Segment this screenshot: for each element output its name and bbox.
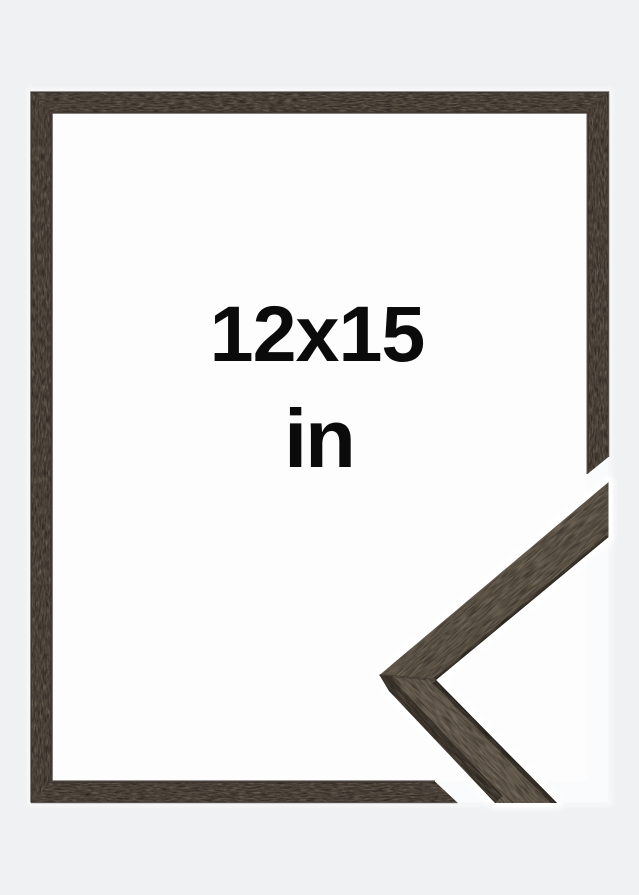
svg-text:in: in <box>284 392 354 485</box>
svg-text:12x15: 12x15 <box>210 289 425 378</box>
